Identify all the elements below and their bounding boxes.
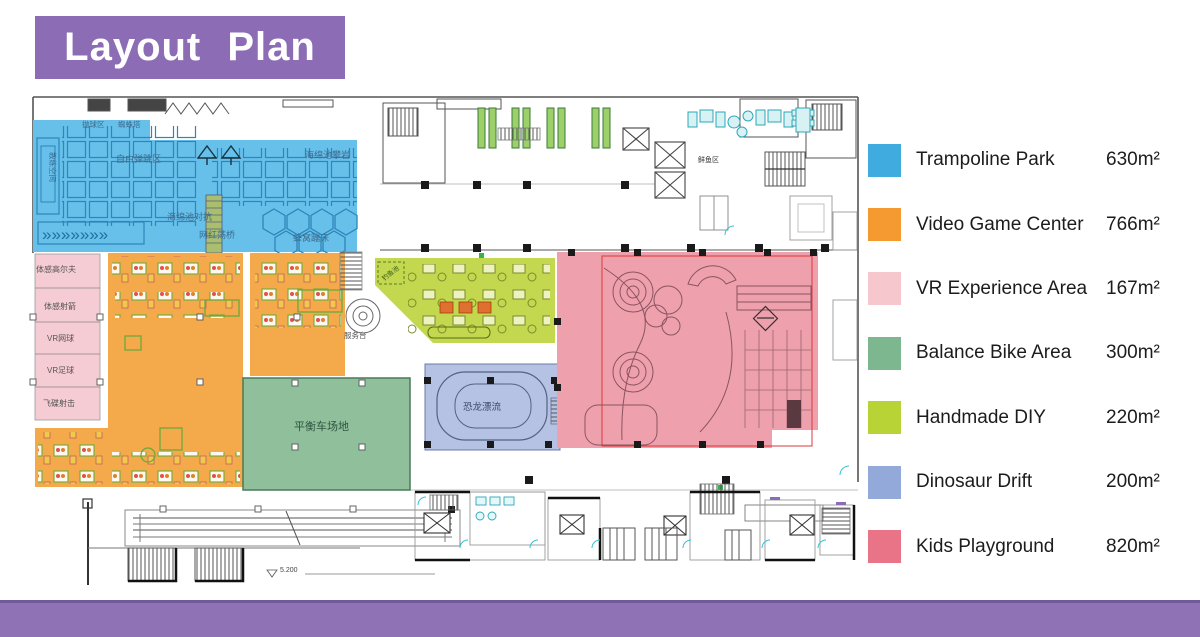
service-desk: 服务台 bbox=[340, 252, 380, 340]
legend-label: Trampoline Park bbox=[916, 149, 1106, 171]
saucer-label: 飞碟射击 bbox=[43, 398, 75, 408]
swatch-kids bbox=[868, 530, 901, 563]
swatch-dinosaur bbox=[868, 466, 901, 499]
legend-label: VR Experience Area bbox=[916, 278, 1106, 300]
zone-kids-playground bbox=[554, 249, 818, 448]
free-jump-label: 自由弹跳区 bbox=[116, 153, 161, 164]
fresh-area-label: 鲜鱼区 bbox=[698, 155, 719, 164]
legend-area: 220m² bbox=[1106, 407, 1160, 429]
legend-area: 766m² bbox=[1106, 214, 1160, 236]
vr-soccer-label: VR足球 bbox=[47, 365, 74, 375]
level-marker: 5.200 bbox=[267, 567, 435, 577]
honeycomb-label: 蜂窝蹦床 bbox=[293, 232, 329, 243]
zone-vr-experience: 体感高尔夫 体感射箭 VR网球 VR足球 飞碟射击 bbox=[35, 254, 100, 420]
legend-row-dinosaur: Dinosaur Drift 200m² bbox=[868, 450, 1188, 514]
legend-area: 630m² bbox=[1106, 149, 1160, 171]
service-desk-label: 服务台 bbox=[344, 330, 367, 340]
swatch-vr bbox=[868, 272, 901, 305]
zone-dinosaur-drift: 恐龙漂流 bbox=[424, 364, 560, 450]
sponge-climb-label: 海绵池攀岩 bbox=[305, 149, 350, 160]
legend-area: 200m² bbox=[1106, 471, 1160, 493]
spider-tower-label: 蜘蛛塔 bbox=[118, 119, 141, 129]
corridor-stairs-right bbox=[765, 152, 805, 186]
legend-area: 820m² bbox=[1106, 536, 1160, 558]
vr-tennis-label: VR网球 bbox=[47, 333, 74, 343]
corridor-steps bbox=[498, 128, 540, 140]
archery-label: 体感射箭 bbox=[44, 301, 76, 311]
legend-label: Dinosaur Drift bbox=[916, 471, 1106, 493]
ball-zone-label: 抛球区 bbox=[82, 119, 105, 129]
coach-space-label: 教练空间 bbox=[48, 152, 58, 182]
balance-field-label: 平衡车场地 bbox=[294, 419, 349, 433]
zone-handmade-diy: 钓鱼池 bbox=[375, 258, 555, 343]
sponge-battle-label: 海绵池对抗 bbox=[167, 211, 212, 222]
svg-text:5.200: 5.200 bbox=[280, 567, 298, 574]
legend-row-balancebike: Balance Bike Area 300m² bbox=[868, 321, 1188, 385]
legend-row-kids: Kids Playground 820m² bbox=[868, 514, 1188, 578]
dino-drift-label: 恐龙漂流 bbox=[463, 401, 502, 413]
zone-trampoline-park: »»»»»»» bbox=[33, 119, 357, 257]
swing-bridge-label: 网红荡桥 bbox=[199, 229, 235, 240]
golf-label: 体感高尔夫 bbox=[36, 264, 76, 274]
slide: Layout Plan bbox=[0, 0, 1200, 637]
bottom-left-stairs bbox=[128, 505, 823, 581]
legend-label: Handmade DIY bbox=[916, 407, 1106, 429]
track-arrows-icon: »»»»»»» bbox=[42, 225, 108, 244]
swatch-videogame bbox=[868, 208, 901, 241]
lounge-furniture bbox=[688, 108, 814, 137]
swatch-balancebike bbox=[868, 337, 901, 370]
legend-area: 300m² bbox=[1106, 342, 1160, 364]
legend-label: Balance Bike Area bbox=[916, 342, 1106, 364]
swatch-trampoline bbox=[868, 144, 901, 177]
swatch-diy bbox=[868, 401, 901, 434]
legend-row-diy: Handmade DIY 220m² bbox=[868, 386, 1188, 450]
footer-bar bbox=[0, 600, 1200, 637]
legend: Trampoline Park 630m² Video Game Center … bbox=[868, 128, 1188, 579]
legend-label: Video Game Center bbox=[916, 214, 1106, 236]
legend-row-videogame: Video Game Center 766m² bbox=[868, 192, 1188, 256]
legend-row-vr: VR Experience Area 167m² bbox=[868, 257, 1188, 321]
elevator-shafts bbox=[623, 128, 728, 230]
travelator bbox=[125, 506, 460, 546]
legend-area: 167m² bbox=[1106, 278, 1160, 300]
legend-row-trampoline: Trampoline Park 630m² bbox=[868, 128, 1188, 192]
zone-balance-bike: 平衡车场地 bbox=[243, 378, 410, 490]
legend-label: Kids Playground bbox=[916, 536, 1106, 558]
